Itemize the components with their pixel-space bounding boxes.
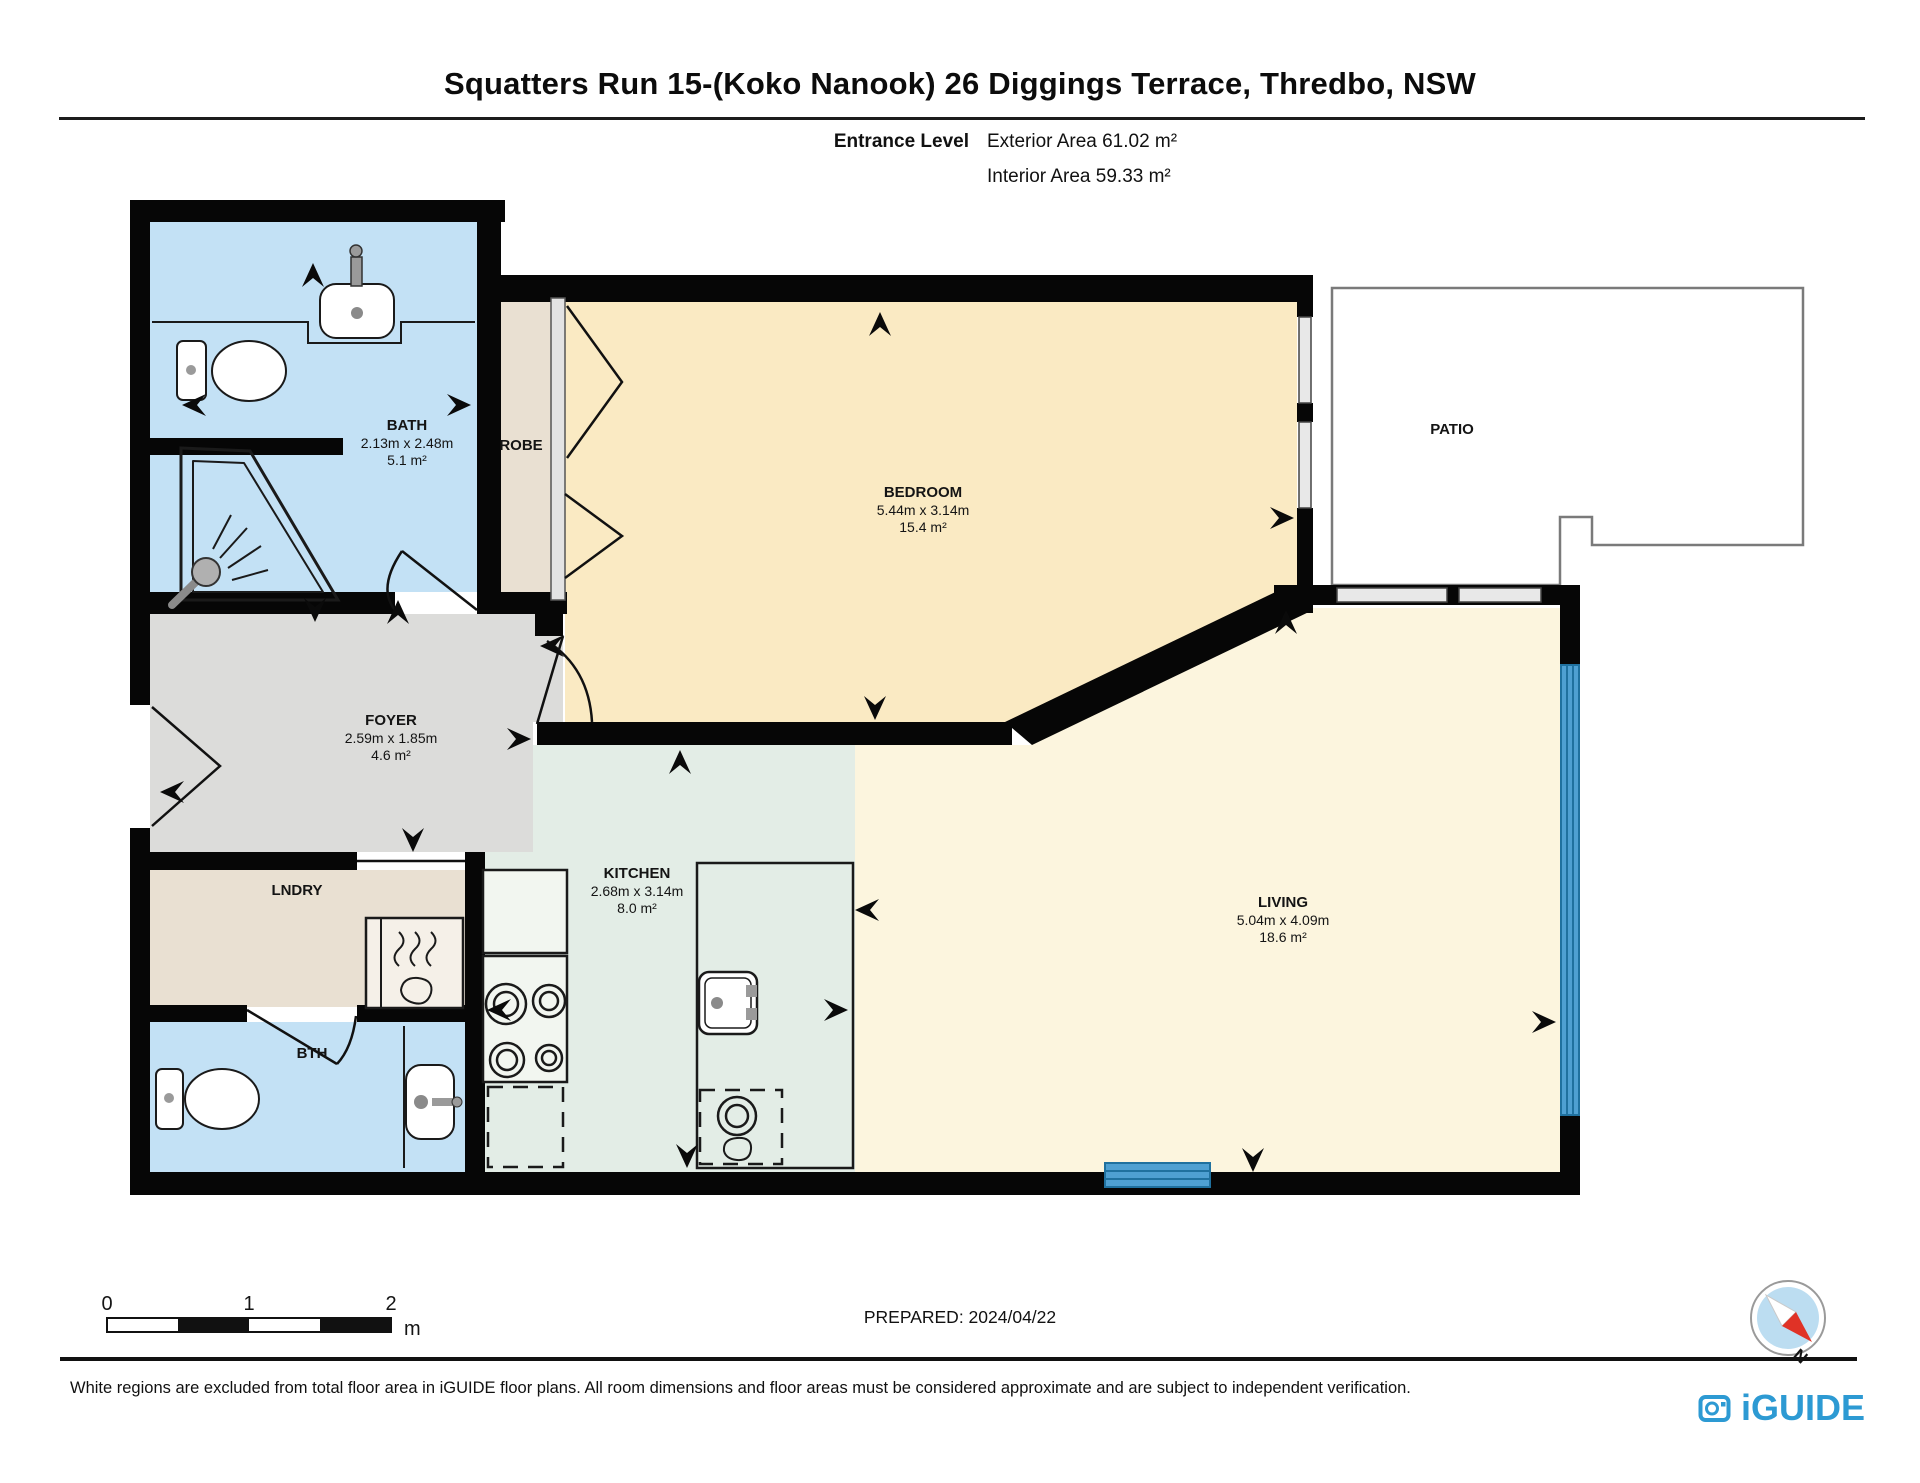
bedroom-window-lower	[1299, 422, 1311, 508]
bath-dims: 2.13m x 2.48m	[361, 435, 454, 451]
foyer-area: 4.6 m²	[371, 747, 411, 763]
patio-outline	[1332, 288, 1803, 585]
kitchen-sink-drain	[711, 997, 723, 1009]
foyer-dims: 2.59m x 1.85m	[345, 730, 438, 746]
kitchen-faucet-b	[746, 1008, 757, 1020]
kitchen-label: KITCHEN	[604, 865, 671, 882]
living-label: LIVING	[1258, 894, 1308, 911]
disclaimer-text: White regions are excluded from total fl…	[70, 1379, 1570, 1398]
prepared-date: PREPARED: 2024/04/22	[0, 1307, 1920, 1328]
living-dims: 5.04m x 4.09m	[1237, 912, 1330, 928]
bath-area: 5.1 m²	[387, 452, 427, 468]
bath-label: BATH	[387, 417, 428, 434]
bth-toilet-bowl	[185, 1069, 259, 1129]
bedroom-area: 15.4 m²	[899, 519, 947, 535]
bedroom-dims: 5.44m x 3.14m	[877, 502, 970, 518]
robe-label: ROBE	[499, 437, 542, 454]
living-glass-slider	[1561, 665, 1579, 1115]
bth-faucet	[432, 1098, 454, 1106]
foyer-label: FOYER	[365, 712, 417, 729]
living-patio-window-right	[1459, 588, 1541, 602]
kitchen-dims: 2.68m x 3.14m	[591, 883, 684, 899]
living-bottom-window	[1105, 1163, 1210, 1187]
footer-divider	[60, 1357, 1857, 1361]
bath-faucet-knob	[350, 245, 362, 257]
brand-logo: iGUIDE	[1698, 1390, 1865, 1426]
patio-label: PATIO	[1430, 421, 1474, 438]
bath-toilet-bowl	[212, 341, 286, 401]
bath-sink-drain	[351, 307, 363, 319]
brand-name: iGUIDE	[1741, 1390, 1865, 1426]
bth-sink-drain	[414, 1095, 428, 1109]
shower-head	[192, 558, 220, 586]
bath-faucet	[351, 257, 362, 286]
kitchen-bench	[483, 870, 567, 953]
bath-toilet-button	[186, 365, 196, 375]
bth-toilet-button	[164, 1093, 174, 1103]
robe-door-track	[551, 298, 565, 600]
camera-icon	[1698, 1392, 1734, 1424]
kitchen-faucet-a	[746, 985, 757, 997]
bedroom-window-upper	[1299, 317, 1311, 403]
living-patio-window-left	[1337, 588, 1447, 602]
living-area: 18.6 m²	[1259, 929, 1307, 945]
kitchen-area: 8.0 m²	[617, 900, 657, 916]
kitchen-sink	[699, 972, 757, 1034]
laundry-label: LNDRY	[271, 882, 322, 899]
bedroom-label: BEDROOM	[884, 484, 962, 501]
bth-faucet-knob	[452, 1097, 462, 1107]
bth-label: BTH	[297, 1045, 328, 1062]
floor-plan: BATH 2.13m x 2.48m 5.1 m² ROBE BEDROOM 5…	[0, 0, 1920, 1483]
